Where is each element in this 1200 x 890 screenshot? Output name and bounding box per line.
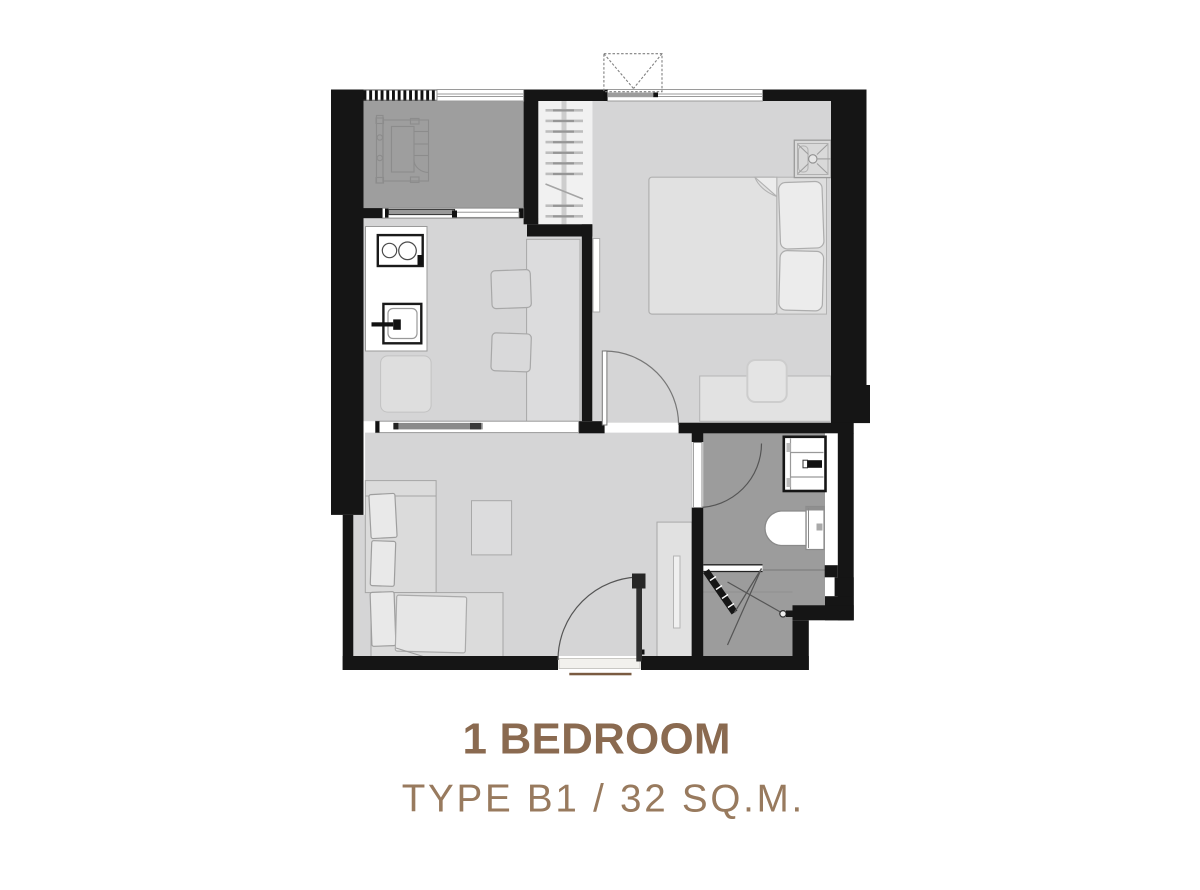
svg-text:TYPE B1 / 32 SQ.M.: TYPE B1 / 32 SQ.M. bbox=[402, 778, 805, 821]
svg-text:1 BEDROOM: 1 BEDROOM bbox=[462, 715, 730, 764]
